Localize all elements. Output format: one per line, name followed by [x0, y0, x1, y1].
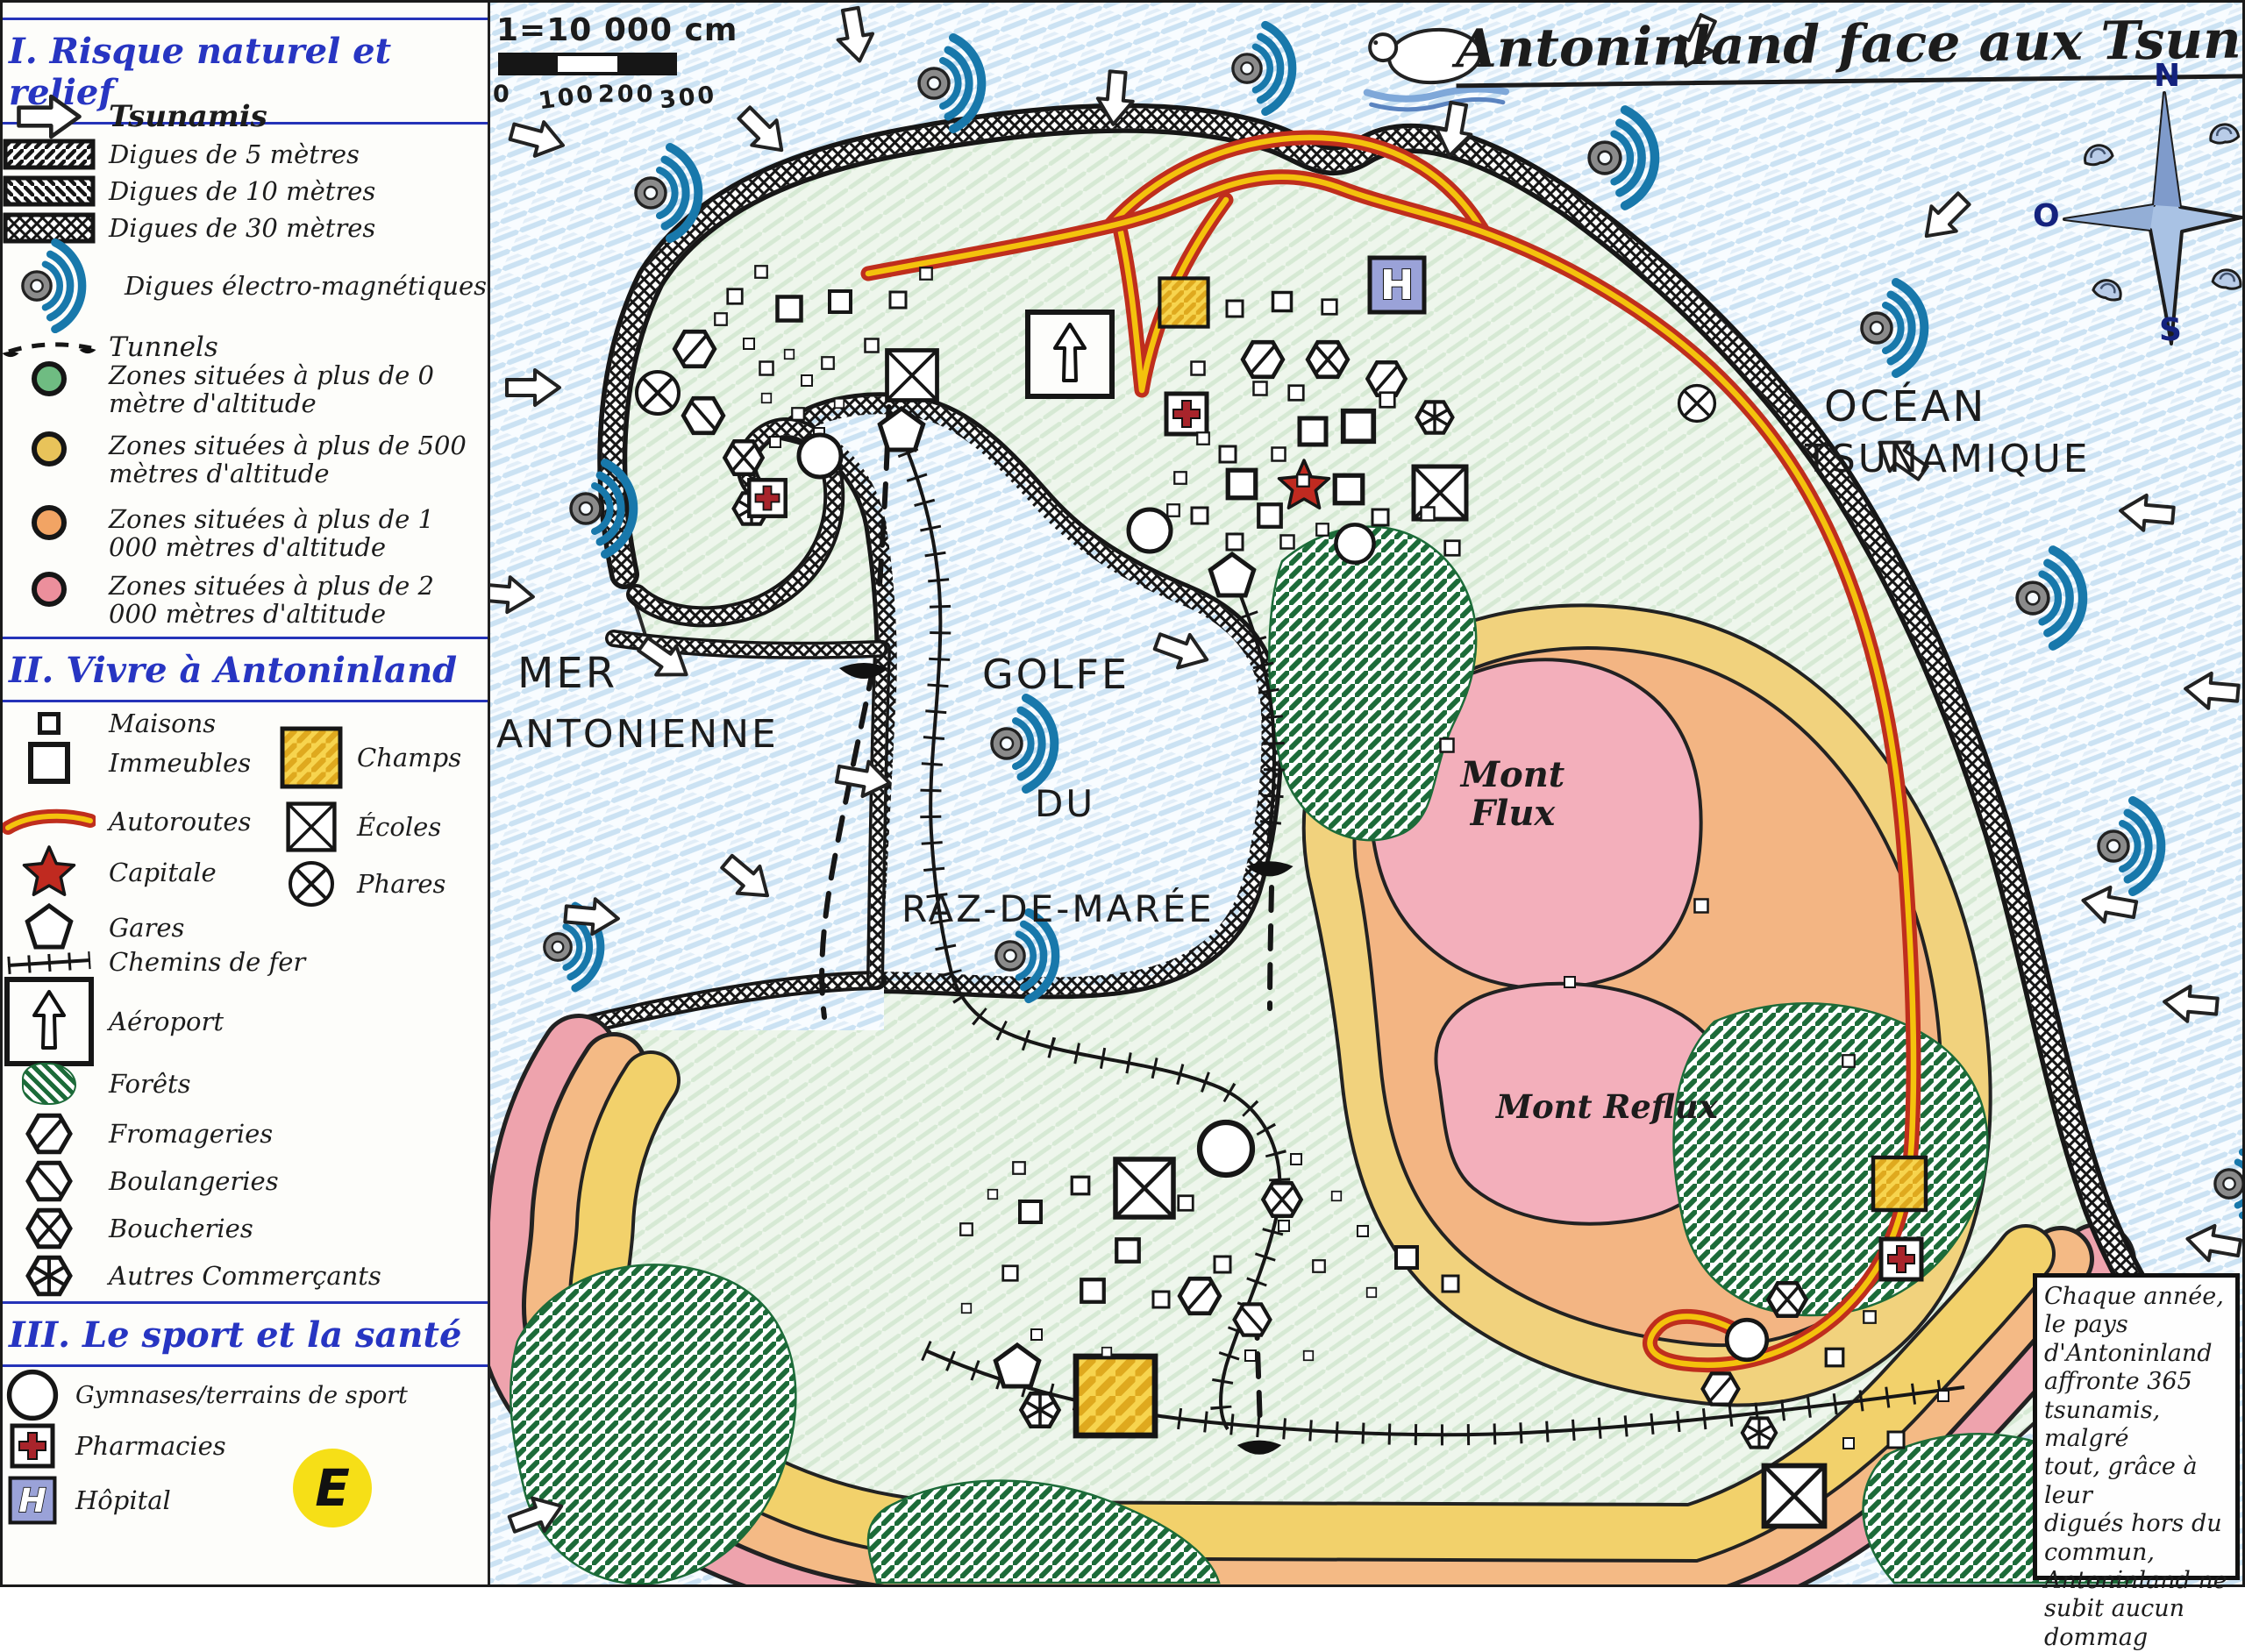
building-icon	[802, 375, 812, 386]
legend-item-zone1000: Zones situées à plus de 1 000 mètres d'a…	[0, 505, 477, 562]
building-icon	[1031, 1329, 1042, 1340]
boulangerie-icon	[683, 398, 723, 433]
building-icon	[1380, 393, 1395, 408]
ecole-icon	[276, 800, 346, 854]
building-icon	[1445, 541, 1460, 556]
building-icon	[988, 1190, 998, 1200]
legend-item-emd: Digues électro-magnétiques	[0, 239, 487, 333]
fromagerie-icon	[1180, 1278, 1220, 1314]
sea-label-2: ANTONIENNE	[496, 712, 779, 757]
building-icon	[1174, 472, 1187, 484]
ocean-label-1: OCÉAN	[1824, 382, 1986, 431]
gulf-label-2: DU	[1035, 782, 1095, 825]
info-box: Chaque année,le paysd'Antoninlandaffront…	[2033, 1273, 2240, 1580]
commerce-icon	[1021, 1392, 1058, 1428]
building-icon	[1343, 411, 1374, 442]
building-icon	[1013, 1162, 1025, 1174]
ecole-icon	[1115, 1159, 1173, 1217]
fromagerie-icon	[1703, 1373, 1739, 1404]
fromagerie-icon	[1243, 342, 1283, 377]
building-icon	[1864, 1311, 1876, 1323]
building-icon	[1102, 1348, 1112, 1357]
legend-item-fromageries: Fromageries	[0, 1110, 273, 1157]
building-icon	[1695, 900, 1708, 913]
gym-icon	[1129, 509, 1171, 552]
autoroute-icon	[0, 803, 98, 840]
legend-item-champs: Champs	[276, 724, 461, 791]
building-icon	[835, 399, 845, 409]
building-icon	[1179, 1196, 1194, 1211]
building-icon	[1367, 1288, 1377, 1298]
gulf-label-3: RAZ-DE-MARÉE	[902, 887, 1215, 930]
mont-reflux-label: Mont Reflux	[1496, 1087, 1718, 1126]
aeroport-icon	[0, 975, 98, 1068]
zone-yellow-icon	[0, 431, 98, 466]
legend-item-tunnels: Tunnels	[0, 331, 218, 363]
gulf-label-1: GOLFE	[982, 651, 1130, 698]
immeuble-icon	[0, 742, 98, 784]
phare-icon	[1679, 386, 1715, 422]
electromagnetic-dike-icon	[0, 239, 114, 333]
legend-item-boucheries: Boucheries	[0, 1205, 253, 1252]
compass-south-label: S	[2159, 312, 2182, 348]
building-icon	[1258, 504, 1281, 527]
building-icon	[1335, 475, 1363, 503]
building-icon	[755, 266, 767, 278]
champs-icon	[276, 724, 346, 791]
building-icon	[1272, 448, 1286, 461]
ocean-label-2: TSUNAMIQUE	[1805, 437, 2091, 481]
building-icon	[1227, 301, 1243, 317]
building-icon	[962, 1304, 972, 1314]
boucherie-icon	[724, 441, 762, 474]
legend-item-immeubles: Immeubles	[0, 742, 251, 784]
boulangerie-icon	[0, 1157, 98, 1205]
legend-item-tsunamis: Tsunamis	[0, 93, 267, 140]
building-icon	[778, 297, 802, 321]
gym-icon	[1200, 1122, 1252, 1175]
phare-icon	[637, 372, 679, 414]
scale-label: 1=10 000 cm	[496, 12, 738, 48]
building-icon	[1297, 474, 1309, 487]
legend-item-hopital: Hôpital	[0, 1471, 171, 1529]
building-icon	[1322, 300, 1337, 315]
foret-icon	[0, 1063, 98, 1105]
hopital-icon	[0, 1471, 65, 1529]
building-icon	[1192, 362, 1205, 375]
fromagerie-icon	[0, 1110, 98, 1157]
boulangerie-icon	[1235, 1304, 1271, 1335]
building-icon	[1938, 1391, 1949, 1401]
legend-item-forets: Forêts	[0, 1063, 191, 1105]
legend-item-zone0: Zones situées à plus de 0 mètre d'altitu…	[0, 361, 477, 418]
building-icon	[1254, 382, 1267, 395]
legend-item-ecoles: Écoles	[276, 800, 441, 854]
legend-item-pharmacies: Pharmacies	[0, 1421, 226, 1471]
legend-item-zone500: Zones situées à plus de 500 mètres d'alt…	[0, 431, 477, 488]
fromagerie-icon	[674, 331, 715, 367]
building-icon	[1197, 432, 1209, 445]
building-icon	[1316, 523, 1329, 536]
zone-orange-icon	[0, 505, 98, 540]
mont-flux-label: Mont Flux	[1456, 756, 1570, 833]
building-icon	[1279, 1221, 1289, 1231]
pharmacie-icon	[0, 1421, 65, 1471]
building-icon	[1300, 418, 1326, 445]
champs-icon	[1159, 278, 1208, 326]
sea-label-1: MER	[517, 649, 617, 698]
maison-icon	[0, 712, 98, 735]
building-icon	[1358, 1226, 1368, 1236]
legend-item-chemins: Chemins de fer	[0, 947, 305, 977]
legend-item-gymnases: Gymnases/terrains de sport	[0, 1368, 408, 1422]
legend-sidebar: I. Risque naturel et relief Tsunamis Dig…	[0, 0, 490, 1587]
pharmacie-icon	[1881, 1239, 1921, 1279]
zone-green-icon	[0, 361, 98, 396]
building-icon	[1245, 1350, 1256, 1361]
fromagerie-icon	[1367, 362, 1405, 395]
zone-pink-icon	[0, 572, 98, 607]
legend-item-gares: Gares	[0, 901, 184, 954]
building-icon	[1826, 1349, 1843, 1366]
legend-item-capitale: Capitale	[0, 844, 217, 901]
pharmacie-icon	[749, 480, 785, 516]
building-icon	[770, 437, 780, 447]
building-icon	[1888, 1432, 1904, 1448]
gym-icon	[799, 435, 841, 477]
building-icon	[762, 394, 772, 403]
building-icon	[1081, 1279, 1104, 1302]
boucherie-icon	[0, 1205, 98, 1252]
building-icon	[1332, 1192, 1342, 1201]
legend-section-2-heading: II. Vivre à Antoninland	[0, 637, 488, 702]
aeroport-icon	[1028, 312, 1112, 396]
commerce-icon	[1743, 1417, 1776, 1448]
dike-5m-icon	[0, 139, 98, 170]
building-icon	[760, 362, 773, 375]
capitale-icon	[0, 844, 98, 901]
building-icon	[1228, 470, 1256, 498]
legend-item-dike5: Digues de 5 mètres	[0, 139, 360, 170]
building-icon	[1443, 1276, 1458, 1292]
legend-item-autoroutes: Autoroutes	[0, 803, 251, 840]
commerce-icon	[1417, 401, 1453, 433]
legend-item-maisons: Maisons	[0, 709, 216, 738]
champs-icon	[1873, 1157, 1926, 1210]
building-icon	[1842, 1055, 1855, 1067]
scale-bar	[500, 54, 675, 74]
railway-icon	[0, 950, 98, 974]
building-icon	[1153, 1292, 1169, 1307]
building-icon	[1167, 504, 1180, 516]
scale-tick-0: 0	[493, 81, 512, 108]
champs-icon	[1076, 1356, 1155, 1435]
building-icon	[1220, 446, 1236, 462]
scanned-hand-drawn-map: { "title": "Antoninland face aux Tsunami…	[0, 0, 2245, 1587]
dike-10m-icon	[0, 175, 98, 207]
building-icon	[1020, 1201, 1041, 1222]
building-icon	[1281, 536, 1294, 549]
building-icon	[866, 339, 879, 352]
boucherie-icon	[1768, 1283, 1806, 1315]
gym-icon	[1336, 524, 1373, 562]
legend-item-zone2000: Zones situées à plus de 2 000 mètres d'a…	[0, 572, 477, 629]
building-icon	[1003, 1266, 1018, 1281]
building-icon	[1289, 386, 1304, 401]
boucherie-icon	[1308, 342, 1348, 377]
phare-icon	[276, 858, 346, 910]
building-icon	[890, 292, 906, 308]
building-icon	[728, 289, 743, 304]
building-icon	[1215, 1257, 1230, 1272]
building-icon	[1304, 1351, 1314, 1361]
building-icon	[785, 350, 795, 360]
building-icon	[1396, 1247, 1417, 1268]
legend-section-3-heading: III. Le sport et la santé	[0, 1301, 488, 1367]
building-icon	[1273, 293, 1292, 311]
building-icon	[1072, 1177, 1089, 1194]
tunnel-icon	[0, 332, 98, 362]
legend-item-dike10: Digues de 10 mètres	[0, 175, 375, 207]
building-icon	[1313, 1260, 1325, 1272]
building-icon	[1564, 977, 1575, 987]
building-icon	[1372, 509, 1388, 525]
boucherie-icon	[1263, 1183, 1301, 1215]
building-icon	[715, 313, 727, 325]
gym-icon	[1727, 1320, 1767, 1360]
building-icon	[960, 1223, 973, 1235]
building-icon	[822, 357, 834, 369]
map-title: Antoninland face aux Tsunamis	[1456, 10, 2234, 81]
legend-item-aeroport: Aéroport	[0, 975, 224, 1068]
gare-icon	[0, 901, 98, 954]
tsunami-arrow-icon	[0, 93, 98, 140]
legend-item-phares: Phares	[276, 858, 445, 910]
building-icon	[1422, 508, 1435, 521]
building-icon	[920, 267, 932, 280]
legend-item-boulangeries: Boulangeries	[0, 1157, 279, 1205]
building-icon	[1843, 1438, 1854, 1449]
pharmacie-icon	[1166, 394, 1207, 434]
building-icon	[1291, 1154, 1301, 1164]
building-icon	[1192, 508, 1208, 523]
building-icon	[1441, 739, 1454, 752]
ecole-icon	[887, 351, 937, 401]
compass-north-label: N	[2154, 58, 2180, 94]
building-icon	[830, 291, 851, 312]
compass-west-label: O	[2033, 198, 2060, 234]
building-icon	[744, 338, 754, 349]
building-icon	[1227, 534, 1243, 550]
ecole-icon	[1764, 1466, 1825, 1527]
hopital-icon	[1370, 258, 1424, 312]
gym-icon	[0, 1368, 65, 1422]
building-icon	[1116, 1239, 1139, 1262]
commerce-icon	[0, 1252, 98, 1300]
scale-tick-200: 200	[598, 81, 655, 108]
building-icon	[792, 408, 804, 420]
grade-badge: E	[293, 1449, 372, 1527]
legend-item-commercants: Autres Commerçants	[0, 1252, 381, 1300]
